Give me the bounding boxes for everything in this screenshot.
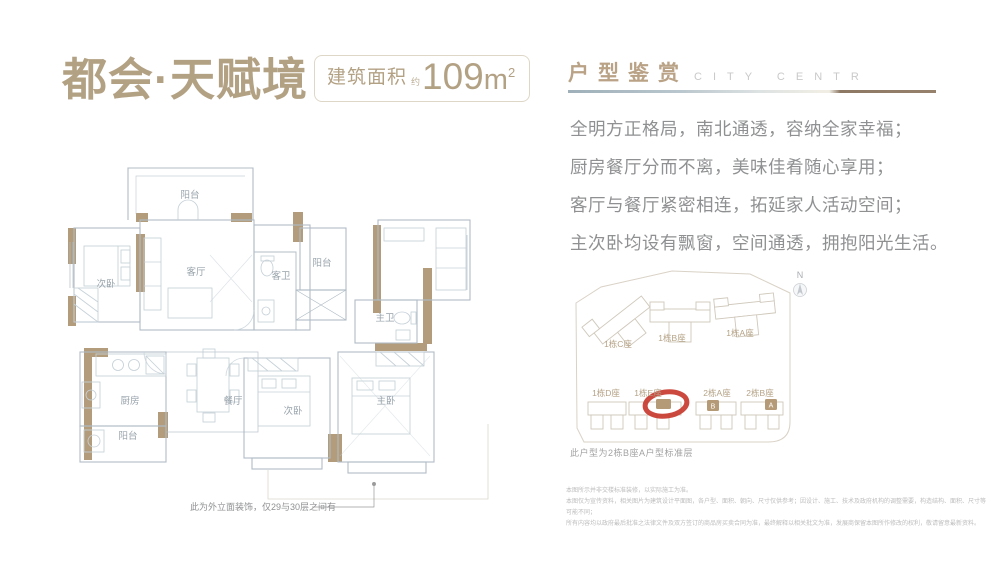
area-number: 109 [422, 61, 484, 94]
area-label: 建筑面积 [327, 62, 407, 94]
room-label-master-bath: 主卫 [375, 312, 395, 324]
description-paragraph: 全明方正格局，南北通透，容纳全家幸福； 厨房餐厅分而不离，美味佳肴随心享用； 客… [570, 110, 948, 262]
building-1C [582, 287, 661, 362]
north-compass-icon: N [794, 270, 807, 297]
floorplan-drawing: 阳台 次卧 客厅 客卫 阳台 主卫 厨房 餐厅 阳台 次卧 主卧 此为外立面装饰… [62, 158, 494, 522]
project-title: 都会·天赋境 [62, 57, 308, 102]
unit-marker-letter: A [769, 403, 774, 410]
room-label-master: 主卧 [376, 395, 396, 407]
disclaimer-line: 本图所示并非交楼标准装修，以实际施工为准。 [566, 486, 990, 497]
selected-unit-block [656, 399, 671, 409]
facade-note: 此为外立面装饰，仅29与30层之间有 [190, 501, 336, 512]
disclaimer-line: 本图仅为宣传资料，相关图片为建筑设计平面图，各户型、面积、朝向、尺寸仅供参考；因… [566, 497, 990, 519]
site-boundary [576, 271, 790, 442]
room-label-living: 客厅 [186, 266, 206, 278]
compass-letter: N [797, 270, 804, 280]
room-label-kitchen: 厨房 [120, 395, 139, 407]
floorplan-furniture [74, 200, 466, 456]
room-label-guest-bath: 客卫 [271, 270, 291, 282]
description-line: 全明方正格局，南北通透，容纳全家幸福； [570, 110, 948, 148]
unit-marker-letter: B [711, 404, 716, 411]
room-label-bedroom-b: 次卧 [283, 405, 303, 417]
floorplan-walls [68, 212, 432, 462]
gradient-divider [568, 90, 936, 93]
room-label-balcony-top: 阳台 [180, 189, 199, 201]
area-unit: m [484, 67, 508, 93]
siteplan-caption: 此户型为2栋B座A户型标准层 [570, 446, 693, 459]
area-badge: 建筑面积 约 109 m 2 [314, 55, 530, 102]
title-block: 都会·天赋境 建筑面积 约 109 m 2 [62, 55, 530, 102]
building-label-1A: 1栋A座 [726, 328, 754, 338]
section-title-en: CITY CENTR [694, 71, 870, 83]
building-label-2A: 2栋A座 [703, 388, 731, 398]
room-label-bedroom-tl: 次卧 [96, 278, 116, 290]
page: 都会·天赋境 建筑面积 约 109 m 2 [0, 0, 1000, 562]
building-label-1D: 1栋D座 [592, 388, 620, 398]
right-header: 户型鉴赏 CITY CENTR [568, 57, 870, 87]
building-label-2B: 2栋B座 [746, 388, 774, 398]
area-approx: 约 [411, 75, 420, 94]
disclaimer-block: 本图所示并非交楼标准装修，以实际施工为准。 本图仅为宣传资料，相关图片为建筑设计… [566, 486, 990, 530]
site-building-labels: 1栋C座 1栋B座 1栋A座 1栋D座 1栋E座 2栋A座 2栋B座 [592, 328, 774, 398]
building-label-1E: 1栋E座 [634, 388, 662, 398]
building-1D [588, 402, 626, 429]
room-label-balcony-bottom: 阳台 [118, 430, 137, 442]
disclaimer-line: 所有内容均以政府最后批准之法律文件及双方签订的商品房买卖合同为准，最终解释以相关… [566, 519, 990, 530]
description-line: 客厅与餐厅紧密相连，拓延家人活动空间； [570, 186, 948, 224]
description-line: 厨房餐厅分而不离，美味佳肴随心享用； [570, 148, 948, 186]
area-superscript: 2 [508, 65, 515, 80]
room-label-dining: 餐厅 [223, 395, 243, 407]
siteplan-drawing: B A 1栋C座 1栋B座 1栋A座 1栋D座 1栋E座 2栋A座 2栋B座 N [562, 256, 834, 454]
floorplan-labels: 阳台 次卧 客厅 客卫 阳台 主卫 厨房 餐厅 阳台 次卧 主卧 [96, 189, 396, 442]
section-title-cn: 户型鉴赏 [568, 57, 688, 87]
room-label-balcony-mid: 阳台 [312, 257, 331, 269]
building-label-1B: 1栋B座 [658, 333, 686, 343]
building-label-1C: 1栋C座 [604, 339, 632, 349]
